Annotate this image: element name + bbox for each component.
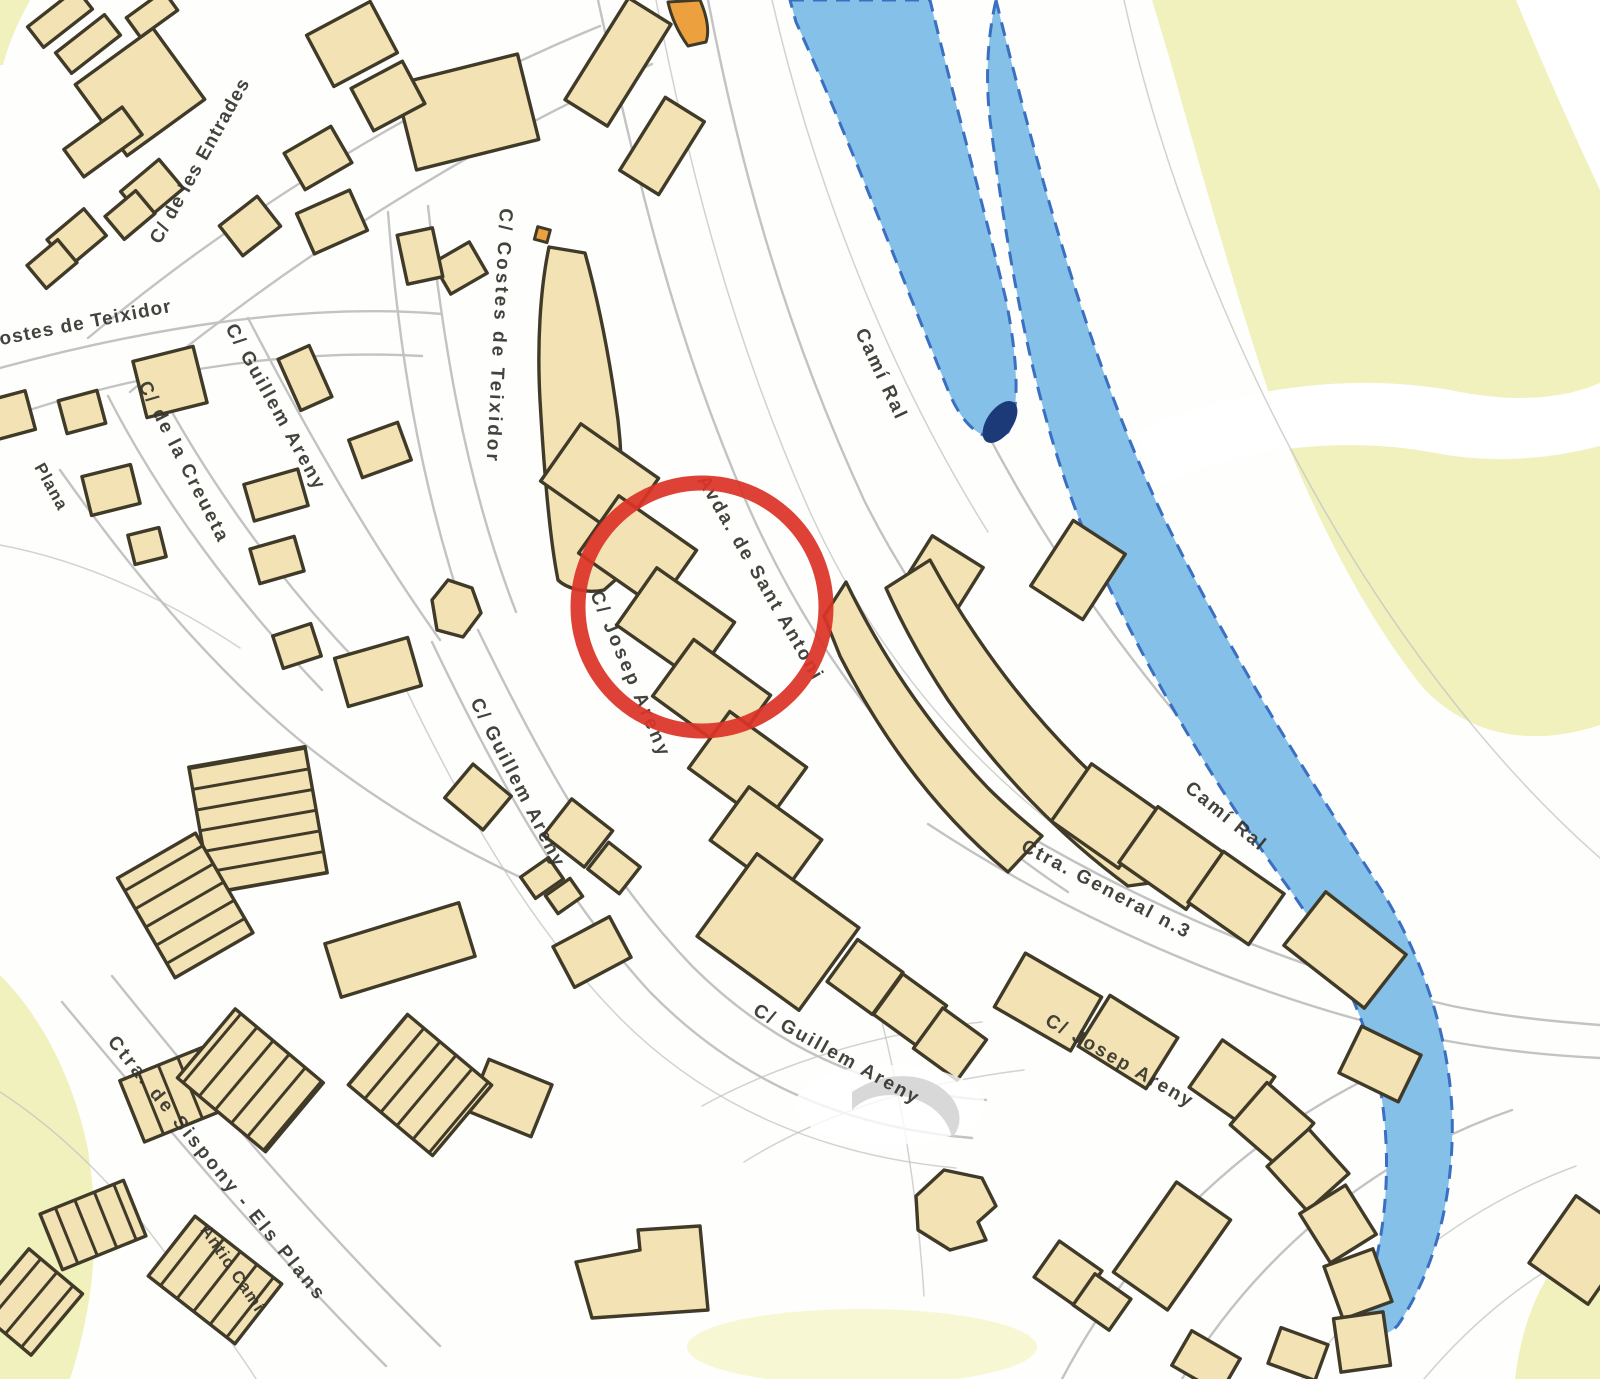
building <box>1333 1312 1390 1372</box>
building <box>128 528 166 565</box>
map-svg: C/ de les Entrades Costes de Teixidor C/… <box>0 0 1600 1379</box>
landmark-building <box>534 227 550 243</box>
